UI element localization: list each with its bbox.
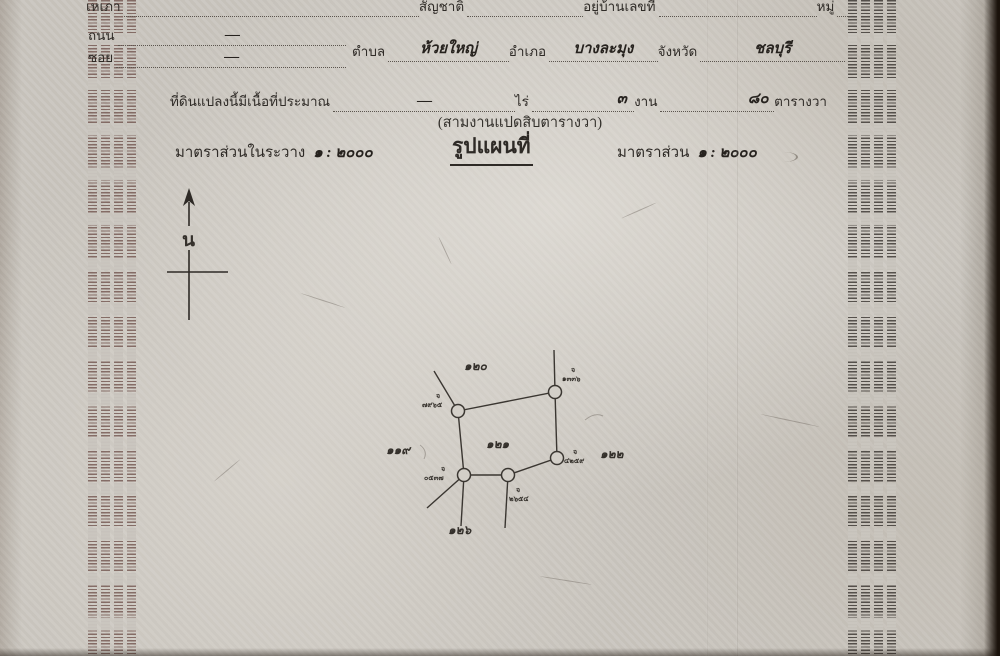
blank-line (124, 1, 419, 17)
location-row: ตำบล ห้วยใหญ่ อำเภอ บางละมุง จังหวัด ชลบ… (352, 40, 845, 62)
rai-label: ไร่ (515, 90, 532, 112)
field-label: เหเภา (86, 0, 124, 17)
marker-number: ๐๕๓๗ (424, 474, 444, 482)
adjacent-parcel-number-left: ๑๑๙ (386, 443, 412, 457)
subdistrict-value: ห้วยใหญ่ (420, 36, 477, 60)
province-value: ชลบุรี (754, 36, 791, 60)
paper-fiber (761, 414, 820, 427)
paper-crease (736, 0, 738, 656)
province-line: ชลบุรี (700, 46, 845, 62)
house-number-label: อยู่บ้านเลขที่ (583, 0, 658, 17)
boundary-extension (505, 475, 508, 528)
survey-marker (551, 452, 564, 465)
adjacent-parcel-number-bottom: ๑๒๖ (448, 523, 473, 537)
security-microtext-strip-left (127, 0, 136, 656)
survey-marker (458, 469, 471, 482)
subdistrict-label: ตำบล (352, 40, 388, 62)
marker-prefix: จ (573, 448, 577, 456)
header-line1: เหเภา สัญชาติ อยู่บ้านเลขที่ หมู่ (86, 0, 848, 17)
wa-label: ตารางวา (774, 90, 830, 112)
security-microtext-strip-left (88, 0, 97, 656)
moo-label: หมู่ (817, 0, 838, 17)
security-microtext-strip-right (874, 0, 883, 656)
marker-number: ๒๖๕๔ (509, 495, 529, 503)
scale-in-sheet-value: ๑ : ๒๐๐๐ (313, 145, 372, 161)
paper-fiber (585, 415, 603, 420)
photo-edge-shadow-bottom (0, 648, 1000, 656)
security-microtext-strip-left (114, 0, 123, 656)
rai-line: — (333, 96, 515, 112)
scale-in-sheet-label: มาตราส่วนในระวาง (175, 145, 305, 161)
paper-fiber (301, 293, 345, 308)
district-label: อำเภอ (509, 40, 549, 62)
road-label: ถนน (88, 24, 118, 46)
soi-line: — (116, 52, 346, 68)
marker-prefix: จ (516, 486, 520, 494)
marker-number: ๗๙๖๕ (422, 401, 443, 409)
blank-line (837, 1, 848, 17)
ngan-line: ๓ (532, 96, 634, 112)
paper-fiber (438, 237, 452, 265)
province-label: จังหวัด (658, 40, 701, 62)
north-arrow: น (158, 188, 238, 333)
rai-value: — (417, 93, 431, 110)
parcel-number: ๑๒๑ (486, 437, 510, 451)
wa-line: ๘๐ (660, 96, 774, 112)
blank-line (467, 1, 583, 17)
soi-value: — (224, 49, 238, 66)
marker-prefix: จ (436, 392, 440, 400)
road-row: ถนน — (88, 24, 346, 46)
road-value: — (225, 27, 239, 44)
soi-label: ซอย (88, 46, 116, 68)
marker-prefix: จ (441, 465, 445, 473)
marker-number: ๑๓๓๖ (562, 375, 581, 383)
security-microtext-strip-left (101, 0, 110, 656)
parcel-sketch: ๑๒๐ ๑๒๑ ๑๑๙ ๑๒๒ ๑๒๖ จ ๗๙๖๕ จ ๑๓๓๖ จ ๔๒๕๙… (360, 330, 700, 560)
survey-marker (452, 405, 465, 418)
survey-marker (502, 469, 515, 482)
paper-fiber (540, 576, 592, 585)
marker-prefix: จ (571, 366, 575, 374)
survey-marker (549, 386, 562, 399)
road-line: — (118, 30, 346, 46)
boundary-extension (461, 475, 464, 526)
soi-row: ซอย — (88, 46, 346, 68)
paper-fiber (420, 445, 425, 459)
ngan-value: ๓ (617, 86, 627, 110)
scale-in-sheet: มาตราส่วนในระวาง๑ : ๒๐๐๐ (175, 140, 373, 164)
marker-number: ๔๒๕๙ (564, 457, 584, 465)
district-line: บางละมุง (549, 46, 658, 62)
paper-fiber (214, 459, 241, 482)
security-microtext-strip-right (861, 0, 870, 656)
stray-pen-mark (770, 152, 798, 162)
adjacent-parcel-number-top: ๑๒๐ (464, 359, 488, 373)
north-label: น (182, 230, 195, 251)
subdistrict-line: ห้วยใหญ่ (388, 46, 509, 62)
paper-fiber (621, 202, 656, 218)
security-microtext-strip-right (848, 0, 857, 656)
area-prefix: ที่ดินแปลงนี้มีเนื้อที่ประมาณ (170, 90, 333, 112)
ngan-label: งาน (634, 90, 660, 112)
nationality-label: สัญชาติ (419, 0, 467, 17)
wa-value: ๘๐ (748, 86, 769, 110)
map-section-title: รูปแผนที่ (450, 130, 533, 166)
map-scale-label: มาตราส่วน (617, 145, 689, 161)
deed-page: เหเภา สัญชาติ อยู่บ้านเลขที่ หมู่ ถนน — … (0, 0, 1000, 656)
parcel-boundary (458, 392, 557, 475)
photo-edge-shadow-right (984, 0, 1000, 656)
adjacent-parcel-number-right: ๑๒๒ (600, 447, 625, 461)
paper-crease (706, 0, 708, 656)
district-value: บางละมุง (573, 36, 633, 60)
security-microtext-strip-right (887, 0, 896, 656)
area-row: ที่ดินแปลงนี้มีเนื้อที่ประมาณ — ไร่ ๓ งา… (170, 90, 830, 112)
